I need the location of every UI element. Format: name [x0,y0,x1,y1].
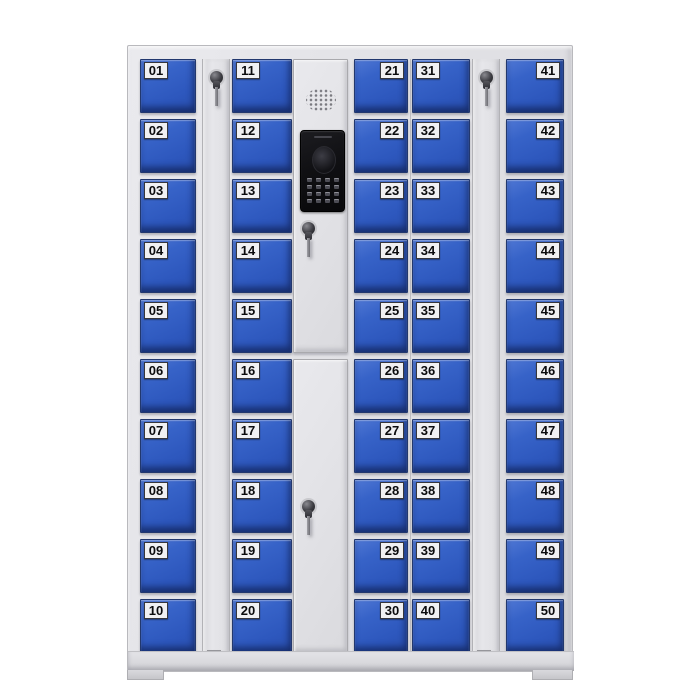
locker-door-18[interactable]: 18 [232,479,292,533]
door-number-label: 34 [416,242,440,259]
key-lock-icon[interactable] [480,71,493,84]
cabinet-base [128,651,574,671]
locker-door-42[interactable]: 42 [506,119,564,173]
door-number-label: 10 [144,602,168,619]
locker-door-08[interactable]: 08 [140,479,196,533]
door-column-3: 21222324252627282930 [354,59,408,653]
door-number-label: 03 [144,182,168,199]
locker-cabinet: 01020304050607080910 1112131415161718192… [127,45,573,672]
column-seam [410,59,411,653]
keypad-key[interactable] [334,178,339,182]
cabinet-foot-left [127,670,164,680]
locker-door-13[interactable]: 13 [232,179,292,233]
door-number-label: 43 [536,182,560,199]
camera-keypad-unit [300,130,345,212]
door-number-label: 01 [144,62,168,79]
locker-door-26[interactable]: 26 [354,359,408,413]
locker-door-15[interactable]: 15 [232,299,292,353]
locker-door-11[interactable]: 11 [232,59,292,113]
door-number-label: 46 [536,362,560,379]
locker-door-49[interactable]: 49 [506,539,564,593]
door-number-label: 06 [144,362,168,379]
speaker-grille-icon [306,88,336,112]
door-number-label: 47 [536,422,560,439]
door-number-label: 25 [380,302,404,319]
locker-door-04[interactable]: 04 [140,239,196,293]
locker-door-01[interactable]: 01 [140,59,196,113]
door-number-label: 36 [416,362,440,379]
control-panel-upper-door[interactable] [293,59,348,353]
keypad-key[interactable] [316,199,321,203]
keypad-key[interactable] [307,185,312,189]
door-number-label: 02 [144,122,168,139]
door-number-label: 07 [144,422,168,439]
control-panel-column [293,59,348,653]
door-column-4: 31323334353637383940 [412,59,470,653]
keypad-key[interactable] [316,192,321,196]
door-number-label: 32 [416,122,440,139]
door-number-label: 23 [380,182,404,199]
locker-door-38[interactable]: 38 [412,479,470,533]
locker-door-34[interactable]: 34 [412,239,470,293]
locker-door-22[interactable]: 22 [354,119,408,173]
locker-door-09[interactable]: 09 [140,539,196,593]
door-number-label: 50 [536,602,560,619]
locker-door-16[interactable]: 16 [232,359,292,413]
locker-door-41[interactable]: 41 [506,59,564,113]
key-lock-icon[interactable] [210,71,223,84]
door-number-label: 31 [416,62,440,79]
door-number-label: 49 [536,542,560,559]
door-number-label: 40 [416,602,440,619]
door-number-label: 26 [380,362,404,379]
door-number-label: 13 [236,182,260,199]
locker-door-05[interactable]: 05 [140,299,196,353]
locker-door-25[interactable]: 25 [354,299,408,353]
locker-door-35[interactable]: 35 [412,299,470,353]
door-column-5: 41424344454647484950 [506,59,564,653]
door-number-label: 27 [380,422,404,439]
door-column-2: 11121314151617181920 [232,59,292,653]
locker-door-31[interactable]: 31 [412,59,470,113]
keypad-key[interactable] [307,192,312,196]
door-column-1: 01020304050607080910 [140,59,196,653]
locker-photo-scene: 01020304050607080910 1112131415161718192… [0,0,700,700]
door-number-label: 12 [236,122,260,139]
locker-door-12[interactable]: 12 [232,119,292,173]
door-number-label: 35 [416,302,440,319]
keypad-key[interactable] [307,178,312,182]
keypad-key[interactable] [334,199,339,203]
key-lock-icon[interactable] [302,500,315,513]
locker-door-40[interactable]: 40 [412,599,470,653]
locker-door-32[interactable]: 32 [412,119,470,173]
door-number-label: 16 [236,362,260,379]
keypad-key[interactable] [334,185,339,189]
door-number-label: 29 [380,542,404,559]
locker-door-14[interactable]: 14 [232,239,292,293]
locker-door-21[interactable]: 21 [354,59,408,113]
door-number-label: 04 [144,242,168,259]
door-number-label: 30 [380,602,404,619]
door-number-label: 19 [236,542,260,559]
door-number-label: 37 [416,422,440,439]
door-number-label: 17 [236,422,260,439]
control-panel-lower-door[interactable] [293,359,348,653]
locker-door-43[interactable]: 43 [506,179,564,233]
locker-door-50[interactable]: 50 [506,599,564,653]
locker-door-02[interactable]: 02 [140,119,196,173]
door-number-label: 05 [144,302,168,319]
locker-door-17[interactable]: 17 [232,419,292,473]
keypad-key[interactable] [325,192,330,196]
locker-door-45[interactable]: 45 [506,299,564,353]
speaker-slot-icon [314,136,332,138]
door-number-label: 48 [536,482,560,499]
locker-door-03[interactable]: 03 [140,179,196,233]
keypad-key[interactable] [316,185,321,189]
door-number-label: 45 [536,302,560,319]
door-number-label: 18 [236,482,260,499]
door-number-label: 15 [236,302,260,319]
locker-door-37[interactable]: 37 [412,419,470,473]
door-number-label: 14 [236,242,260,259]
locker-door-27[interactable]: 27 [354,419,408,473]
side-lock-strip-left [202,59,230,653]
locker-door-10[interactable]: 10 [140,599,196,653]
locker-door-33[interactable]: 33 [412,179,470,233]
keypad-key[interactable] [325,178,330,182]
cabinet-foot-right [532,670,573,680]
door-number-label: 44 [536,242,560,259]
door-number-label: 11 [236,62,260,79]
doors-area: 01020304050607080910 1112131415161718192… [128,59,574,653]
door-number-label: 20 [236,602,260,619]
keypad-key[interactable] [334,192,339,196]
door-number-label: 08 [144,482,168,499]
keypad-key[interactable] [325,199,330,203]
camera-lens-icon [312,146,336,174]
locker-door-44[interactable]: 44 [506,239,564,293]
locker-door-48[interactable]: 48 [506,479,564,533]
locker-door-28[interactable]: 28 [354,479,408,533]
door-number-label: 22 [380,122,404,139]
locker-door-36[interactable]: 36 [412,359,470,413]
door-number-label: 39 [416,542,440,559]
locker-door-20[interactable]: 20 [232,599,292,653]
door-number-label: 42 [536,122,560,139]
locker-door-29[interactable]: 29 [354,539,408,593]
door-number-label: 09 [144,542,168,559]
door-number-label: 33 [416,182,440,199]
locker-door-39[interactable]: 39 [412,539,470,593]
locker-door-46[interactable]: 46 [506,359,564,413]
locker-door-19[interactable]: 19 [232,539,292,593]
locker-door-23[interactable]: 23 [354,179,408,233]
locker-door-06[interactable]: 06 [140,359,196,413]
keypad-key[interactable] [316,178,321,182]
door-number-label: 24 [380,242,404,259]
door-number-label: 38 [416,482,440,499]
keypad-key[interactable] [325,185,330,189]
locker-door-47[interactable]: 47 [506,419,564,473]
door-number-label: 28 [380,482,404,499]
side-lock-strip-right [472,59,500,653]
door-number-label: 21 [380,62,404,79]
keypad [307,178,339,203]
locker-door-24[interactable]: 24 [354,239,408,293]
locker-door-30[interactable]: 30 [354,599,408,653]
door-number-label: 41 [536,62,560,79]
locker-door-07[interactable]: 07 [140,419,196,473]
key-lock-icon[interactable] [302,222,315,235]
keypad-key[interactable] [307,199,312,203]
